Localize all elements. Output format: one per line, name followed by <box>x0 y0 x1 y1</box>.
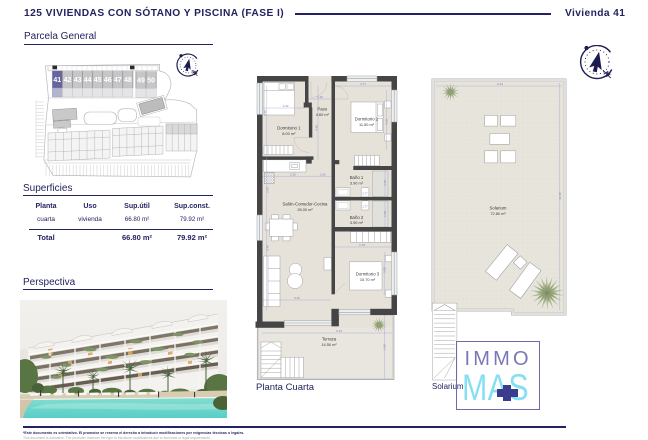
svg-text:3.90 m²: 3.90 m² <box>350 220 364 225</box>
svg-text:1.40: 1.40 <box>383 180 387 186</box>
svg-text:2.77: 2.77 <box>362 192 368 196</box>
svg-text:5.45: 5.45 <box>266 245 270 251</box>
svg-text:4.40: 4.40 <box>314 125 318 131</box>
svg-text:45: 45 <box>94 77 102 84</box>
svg-text:3.85: 3.85 <box>382 267 386 273</box>
svg-text:Solarium: Solarium <box>490 206 507 211</box>
svg-text:Baño 1: Baño 1 <box>350 175 364 180</box>
svg-text:Dormitorio 3: Dormitorio 3 <box>356 272 380 277</box>
svg-text:41: 41 <box>53 77 61 84</box>
svg-text:2.32: 2.32 <box>283 104 289 108</box>
svg-text:3.60: 3.60 <box>263 110 267 116</box>
svg-text:42: 42 <box>64 77 72 84</box>
svg-text:6.34: 6.34 <box>336 329 342 333</box>
svg-text:49: 49 <box>137 77 145 84</box>
svg-text:26.00 m²: 26.00 m² <box>297 207 313 212</box>
svg-text:50: 50 <box>147 77 155 84</box>
svg-text:1.20: 1.20 <box>317 95 323 99</box>
svg-text:47: 47 <box>114 77 122 84</box>
svg-text:14.50 m²: 14.50 m² <box>321 342 337 347</box>
svg-text:3.32: 3.32 <box>294 296 300 300</box>
svg-text:Paso: Paso <box>317 107 327 112</box>
svg-text:2.40: 2.40 <box>266 187 270 193</box>
svg-text:4.15: 4.15 <box>385 119 389 125</box>
svg-text:11.50 m²: 11.50 m² <box>359 122 375 127</box>
svg-text:72.80 m²: 72.80 m² <box>490 211 506 216</box>
svg-text:Salón-Comedor-Cocina: Salón-Comedor-Cocina <box>283 202 329 207</box>
svg-text:2.98: 2.98 <box>382 344 386 350</box>
svg-text:2.78: 2.78 <box>359 243 365 247</box>
svg-text:4.60 m²: 4.60 m² <box>316 112 330 117</box>
svg-text:44: 44 <box>84 77 92 84</box>
svg-text:Baño 2: Baño 2 <box>350 215 364 220</box>
svg-text:2.32: 2.32 <box>290 172 296 176</box>
svg-text:1.00: 1.00 <box>320 172 326 176</box>
svg-text:Dormitorio 2: Dormitorio 2 <box>355 117 379 122</box>
svg-text:43: 43 <box>74 77 82 84</box>
svg-text:N: N <box>191 70 199 78</box>
svg-text:46: 46 <box>104 77 112 84</box>
svg-text:Dormitorio 1: Dormitorio 1 <box>277 126 301 131</box>
svg-text:8.00 m²: 8.00 m² <box>282 131 296 136</box>
svg-text:10.70 m²: 10.70 m² <box>360 277 376 282</box>
svg-text:3.90 m²: 3.90 m² <box>350 180 364 185</box>
svg-text:Terraza: Terraza <box>322 337 337 342</box>
svg-text:6.34: 6.34 <box>497 82 503 86</box>
svg-text:2.77: 2.77 <box>362 205 368 209</box>
svg-text:48: 48 <box>124 77 132 84</box>
svg-text:11.30: 11.30 <box>558 192 562 200</box>
svg-text:2.77: 2.77 <box>360 82 366 86</box>
svg-text:1.40: 1.40 <box>383 211 387 217</box>
